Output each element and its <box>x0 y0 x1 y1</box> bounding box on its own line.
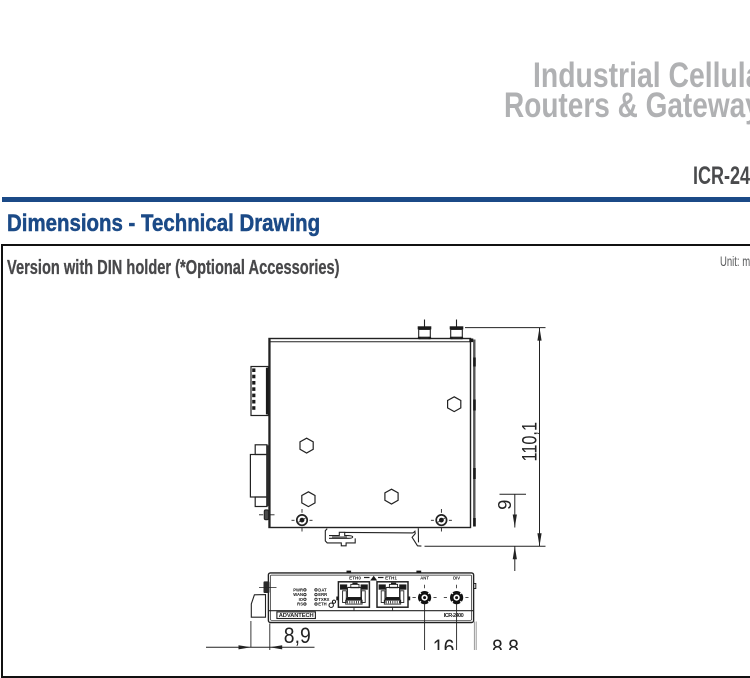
svg-text:ETH: ETH <box>318 602 326 607</box>
svg-text:16: 16 <box>433 636 455 650</box>
svg-text:ANT: ANT <box>420 575 429 580</box>
svg-text:9: 9 <box>494 500 515 510</box>
svg-text:ETH0: ETH0 <box>349 575 361 580</box>
svg-text:ADVANTECH: ADVANTECH <box>279 613 314 619</box>
svg-text:110,1: 110,1 <box>518 422 542 462</box>
svg-text:8,9: 8,9 <box>284 624 311 648</box>
svg-text:ETH1: ETH1 <box>385 575 397 580</box>
svg-text:8,8: 8,8 <box>492 636 519 650</box>
svg-text:RS: RS <box>297 602 303 607</box>
svg-text:DIV: DIV <box>453 575 460 580</box>
svg-text:ICR-2400: ICR-2400 <box>444 613 464 619</box>
